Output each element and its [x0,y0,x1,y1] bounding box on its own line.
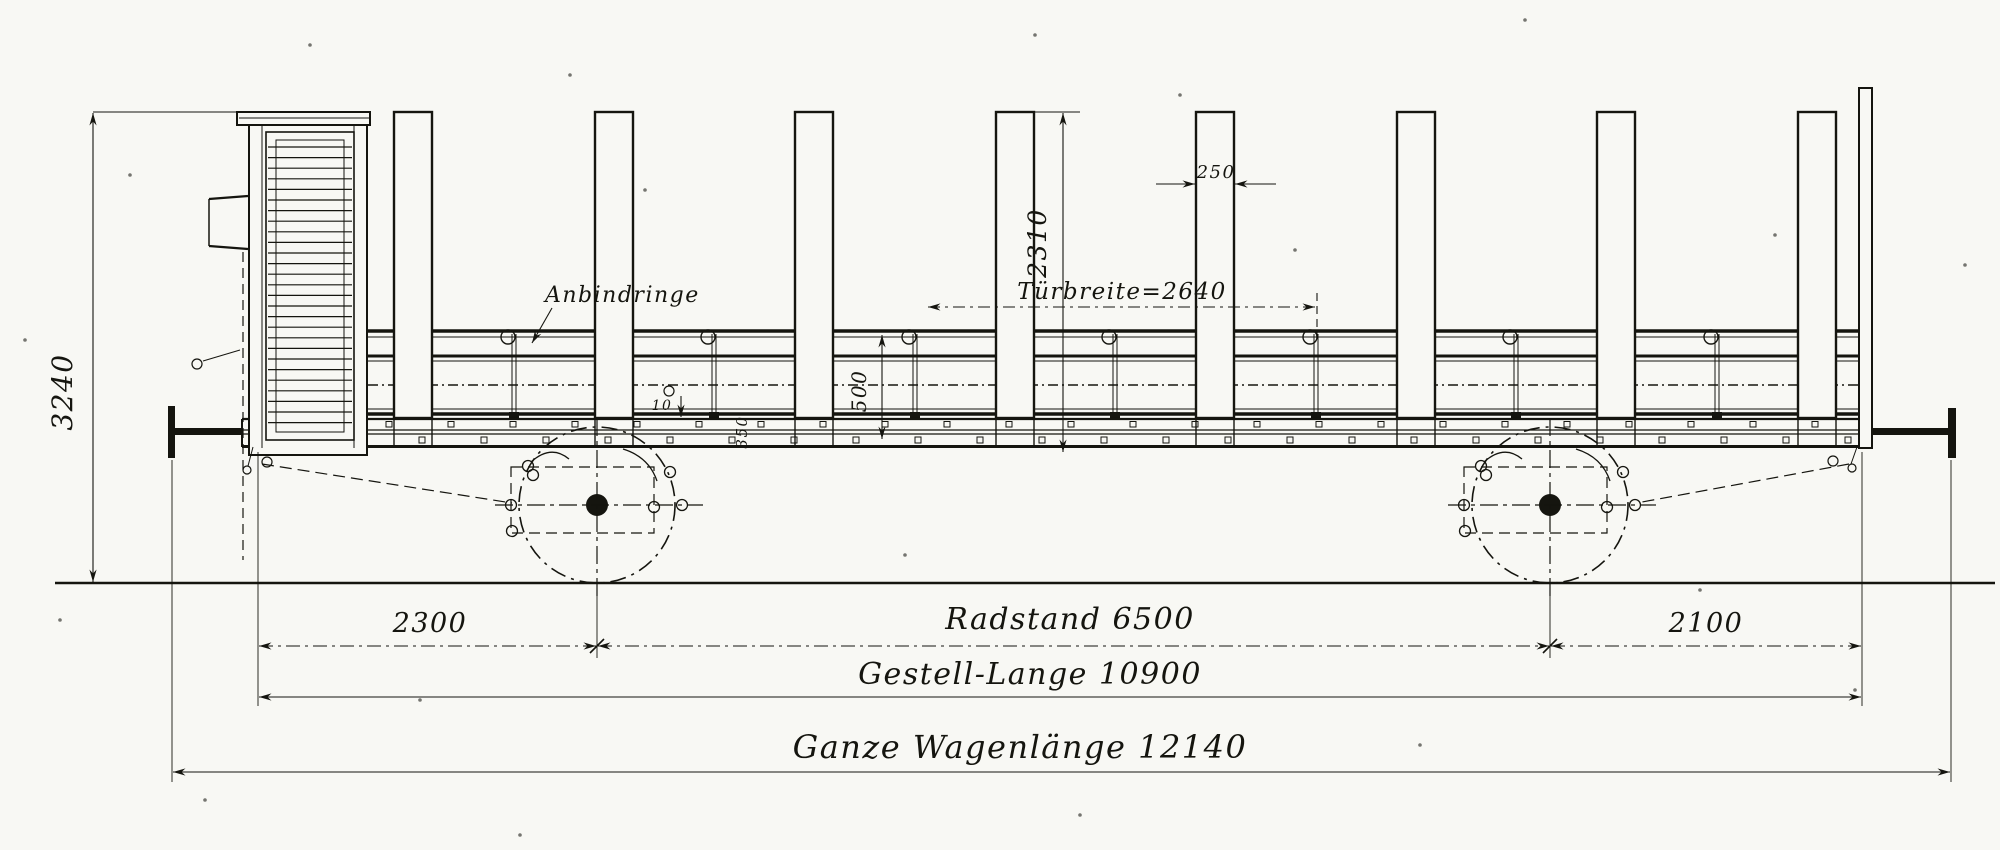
wagon-side-view [55,88,1995,597]
lamp-bracket [209,196,248,249]
blueprint-page: 3240 250 2310 Türbreite=2640 500 [0,0,2000,850]
buffer-left [168,406,242,458]
dimension-chain-axles: 2300 Radstand 6500 2100 [259,602,1861,653]
wagon-technical-drawing: 3240 250 2310 Türbreite=2640 500 [0,0,2000,850]
dim-label-wheelbase: Radstand 6500 [944,602,1195,637]
dim-label-left-overhang: 2300 [392,608,468,639]
dim-label-right-overhang: 2100 [1668,608,1744,639]
dimension-stake-width: 250 [1156,162,1276,184]
dimension-frame-length: Gestell-Lange 10900 [259,657,1861,697]
frame-bolts [262,422,1851,444]
buffer-right [1872,408,1956,458]
tie-rings-label: Anbindringe [543,283,700,308]
brake-hose-ring [192,359,202,369]
stake [1798,112,1836,418]
wheel-left [495,418,703,597]
stake [795,112,833,418]
dim-label-stake-height: 2310 [1023,208,1052,279]
stake [1597,112,1635,418]
brakeman-cabin [192,112,370,560]
dim-label-frame-length: Gestell-Lange 10900 [858,657,1202,692]
dimension-total-height: 3240 [46,112,240,582]
platform-frame [242,419,1862,447]
coupling-hook-right [1642,447,1857,502]
wheel-right [1448,418,1656,597]
dim-label-frame-depth: 350 [733,415,751,448]
dimension-door-width: Türbreite=2640 [928,279,1317,338]
stake [1196,112,1234,418]
dim-label-stake-width: 250 [1196,162,1236,183]
stake [394,112,432,418]
stake [595,112,633,418]
dimension-total-length: Ganze Wagenlänge 12140 [173,728,1950,772]
dim-label-total-height: 3240 [46,353,79,430]
dim-label-total-length: Ganze Wagenlänge 12140 [793,728,1248,766]
dim-label-ring-offset: 10 [652,398,673,414]
stake [1397,112,1435,418]
tie-ring-posts [501,330,1722,419]
dim-label-door-width: Türbreite=2640 [1017,279,1227,305]
dim-label-side-height: 500 [847,370,871,413]
dimension-side-height: 500 [847,335,882,439]
end-board [1859,88,1872,448]
